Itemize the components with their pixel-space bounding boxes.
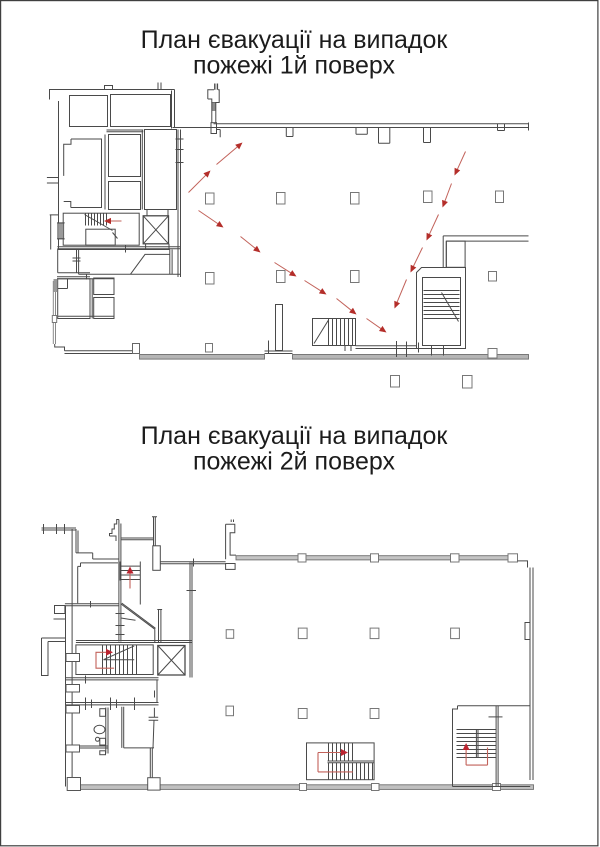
svg-text:пожежі 2й поверх: пожежі 2й поверх — [193, 448, 396, 476]
svg-text:План євакуації на випадок: План євакуації на випадок — [141, 422, 449, 450]
svg-text:План євакуації на випадок: План євакуації на випадок — [141, 26, 449, 54]
svg-text:пожежі 1й поверх: пожежі 1й поверх — [193, 52, 396, 80]
